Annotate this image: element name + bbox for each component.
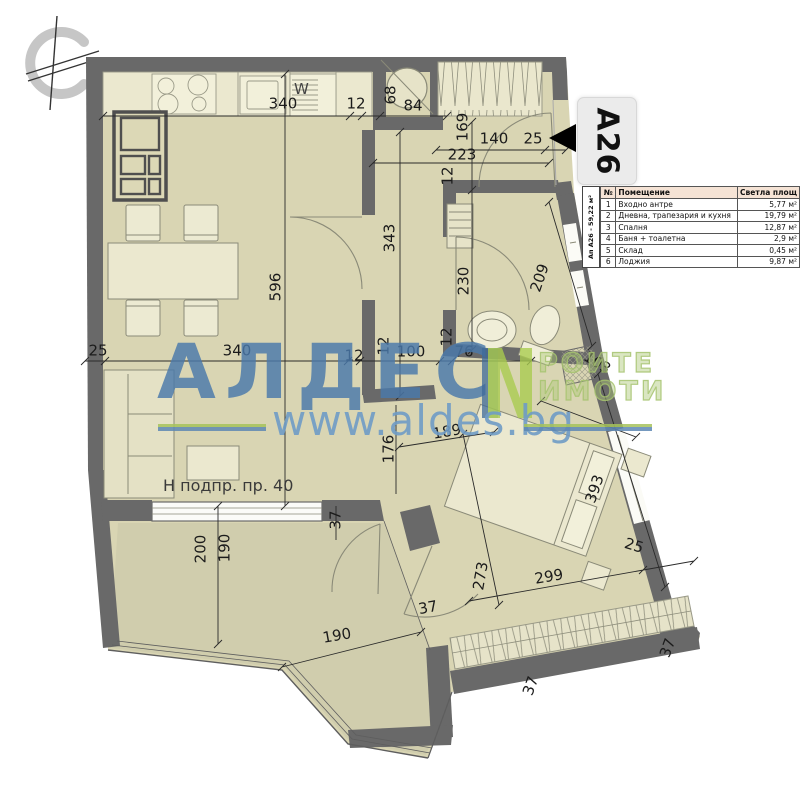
window-note: Н подпр. пр. 40 (163, 476, 293, 495)
room-name: Лоджия (616, 256, 738, 268)
fridge-cabinet (114, 112, 166, 200)
coffee-table (187, 446, 239, 480)
room-number: 1 (601, 199, 616, 211)
room-area: 19,79 м² (738, 210, 800, 222)
table-row: 3Спалня12,87 м² (601, 222, 800, 234)
room-name: Дневна, трапезария и кухня (616, 210, 738, 222)
table-body: 1Входно антре5,77 м²2Дневна, трапезария … (601, 199, 800, 268)
room-area: 2,9 м² (738, 233, 800, 245)
entrance-wardrobe (438, 62, 542, 116)
room-name: Входно антре (616, 199, 738, 211)
table-column-header: Помещение (616, 187, 738, 199)
room-area: 12,87 м² (738, 222, 800, 234)
table-header: №ПомещениеСветла площ (601, 187, 800, 199)
room-area: 5,77 м² (738, 199, 800, 211)
room-number: 5 (601, 245, 616, 257)
floorplan-canvas: 3401268841402516922312596343230209122534… (0, 0, 800, 800)
room-name: Спалня (616, 222, 738, 234)
towel-radiator (447, 204, 473, 248)
table-row: 5Склад0,45 м² (601, 245, 800, 257)
floorplan-drawing (0, 0, 800, 800)
apartment-badge-label: А26 (590, 107, 625, 175)
room-number: 2 (601, 210, 616, 222)
table-row: 2Дневна, трапезария и кухня19,79 м² (601, 210, 800, 222)
room-number: 4 (601, 233, 616, 245)
entrance-arrow-icon (549, 124, 576, 152)
living-room-window (152, 502, 322, 521)
room-number: 3 (601, 222, 616, 234)
table-row: 6Лоджия9,87 м² (601, 256, 800, 268)
room-name: Склад (616, 245, 738, 257)
room-name: Баня + тоалетна (616, 233, 738, 245)
bathroom-sink (468, 311, 516, 349)
table-row: 1Входно антре5,77 м² (601, 199, 800, 211)
table-column-header: № (601, 187, 616, 199)
apartment-total-label: Ап А26 - 59,22 м² (582, 186, 600, 268)
table-column-header: Светла площ (738, 187, 800, 199)
table-row: 4Баня + тоалетна2,9 м² (601, 233, 800, 245)
kitchen-counter (103, 72, 372, 116)
apartment-badge: А26 (577, 97, 637, 185)
room-number: 6 (601, 256, 616, 268)
room-area: 0,45 м² (738, 245, 800, 257)
shaft (560, 345, 598, 385)
room-area-table: Ап А26 - 59,22 м² №ПомещениеСветла площ … (582, 186, 800, 268)
washing-machine-label: W (294, 80, 309, 98)
room-area: 9,87 м² (738, 256, 800, 268)
